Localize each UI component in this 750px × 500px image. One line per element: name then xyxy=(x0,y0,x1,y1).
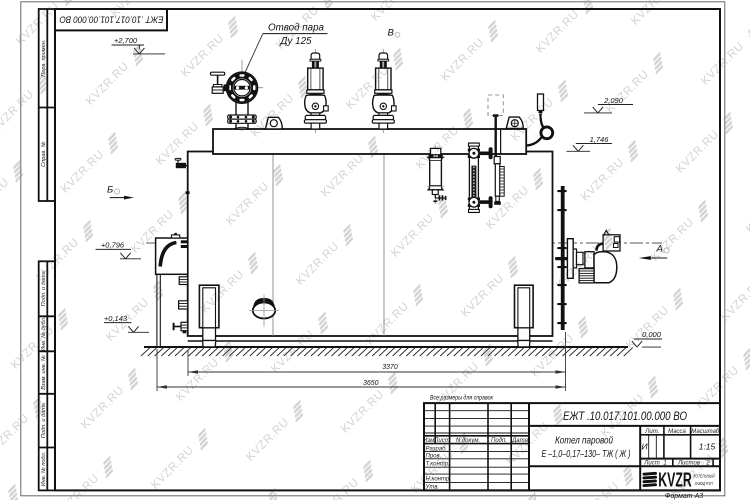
svg-text:1,746: 1,746 xyxy=(590,135,610,144)
svg-text:Справ. №: Справ. № xyxy=(41,141,47,166)
svg-text:1: 1 xyxy=(663,461,666,467)
svg-text:И: И xyxy=(641,442,648,452)
svg-text:Масса: Масса xyxy=(668,429,686,435)
svg-text:3650: 3650 xyxy=(363,380,378,387)
svg-text:Взам. инв. №: Взам. инв. № xyxy=(41,355,47,390)
svg-text:В: В xyxy=(388,27,395,38)
svg-text:Перв. примен.: Перв. примен. xyxy=(41,40,47,77)
svg-text:3370: 3370 xyxy=(382,364,397,371)
svg-text:ЗАВОД РЭП: ЗАВОД РЭП xyxy=(695,481,714,486)
svg-text:Формат А3: Формат А3 xyxy=(665,493,703,500)
svg-text:Лит.: Лит. xyxy=(644,429,659,435)
svg-text:Б: Б xyxy=(107,185,113,196)
svg-text:Лист: Лист xyxy=(433,438,449,444)
svg-text:Е –1,0–0,17–130– ТЖ ( Ж ): Е –1,0–0,17–130– ТЖ ( Ж ) xyxy=(542,449,631,460)
svg-text:+2,700: +2,700 xyxy=(114,36,138,45)
svg-text:Лист: Лист xyxy=(643,461,659,467)
svg-text:Масштаб: Масштаб xyxy=(691,429,720,435)
svg-text:+0,796: +0,796 xyxy=(101,241,125,250)
svg-text:Подп.: Подп. xyxy=(491,438,507,444)
svg-text:ЕЖТ .10.017.101.00.000 ВО: ЕЖТ .10.017.101.00.000 ВО xyxy=(59,14,163,25)
svg-text:Инв. № подл.: Инв. № подл. xyxy=(41,452,47,487)
svg-text:Подп. и дата: Подп. и дата xyxy=(41,403,47,438)
svg-text:1:15: 1:15 xyxy=(699,442,716,452)
